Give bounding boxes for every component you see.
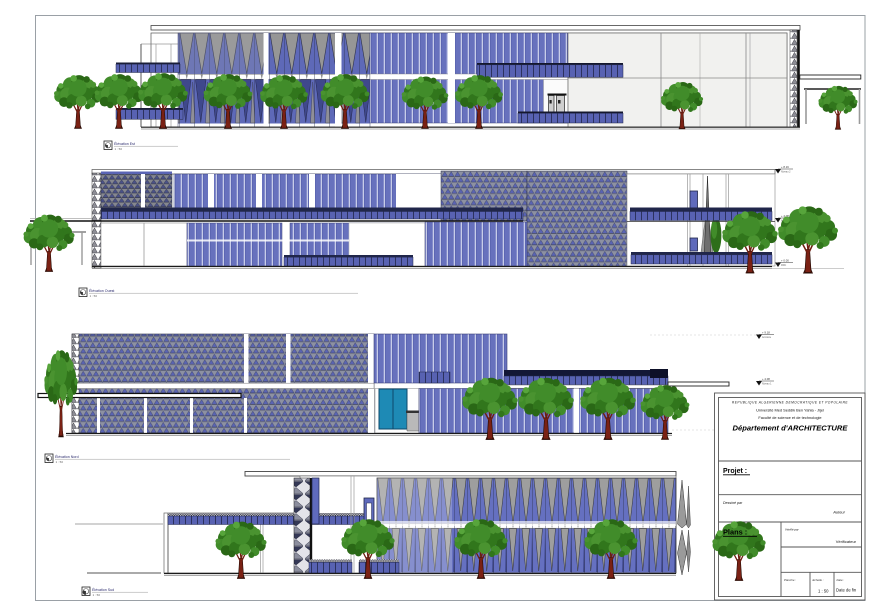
svg-text:Projet :: Projet : [723, 468, 747, 475]
svg-text:+ 9.18: + 9.18 [762, 330, 770, 334]
svg-text:+ 8.16: + 8.16 [781, 165, 789, 169]
svg-text:Auteur: Auteur [832, 510, 845, 515]
svg-text:Université Med Seddik Ben Yahi: Université Med Seddik Ben Yahia - Jijel [756, 408, 824, 413]
svg-text:Vérifié par: Vérifié par [785, 528, 800, 532]
svg-text:Date :: Date : [837, 578, 845, 582]
svg-text:Acrotère: Acrotère [762, 336, 772, 339]
svg-text:1 : 50: 1 : 50 [90, 294, 98, 298]
svg-text:Vérificateur: Vérificateur [836, 539, 857, 544]
svg-text:1 : 50: 1 : 50 [115, 147, 123, 151]
svg-text:Niveau 2: Niveau 2 [781, 171, 791, 174]
svg-text:Dessiné par: Dessiné par [723, 501, 743, 505]
svg-text:Plans :: Plans : [723, 528, 747, 537]
svg-text:Département d'ARCHITECTURE: Département d'ARCHITECTURE [733, 424, 849, 433]
svg-text:Date de fin: Date de fin [836, 588, 857, 593]
svg-text:+ 0.00: + 0.00 [781, 258, 789, 262]
svg-text:+ 4.08: + 4.08 [762, 377, 770, 381]
svg-text:Niveau 1: Niveau 1 [762, 383, 772, 386]
svg-text:Planche :: Planche : [784, 578, 796, 582]
svg-text:Élévation Sud: Élévation Sud [92, 587, 114, 592]
svg-text:REPUBLIQUE ALGERIENNE DEMOCRAT: REPUBLIQUE ALGERIENNE DEMOCRATIQUE ET PO… [732, 401, 849, 405]
svg-text:Echelle :: Echelle : [813, 578, 824, 582]
svg-text:Élévation Est: Élévation Est [114, 141, 135, 146]
svg-text:Élévation Nord: Élévation Nord [55, 454, 79, 459]
svg-text:1 : 50: 1 : 50 [93, 593, 101, 597]
svg-text:Faculté de science et de techn: Faculté de science et de technologie [758, 415, 821, 420]
svg-text:1 : 50: 1 : 50 [818, 589, 829, 594]
svg-text:Élévation Ouest: Élévation Ouest [89, 288, 114, 293]
svg-text:1 : 50: 1 : 50 [56, 460, 64, 464]
svg-text:RDC: RDC [781, 264, 786, 267]
